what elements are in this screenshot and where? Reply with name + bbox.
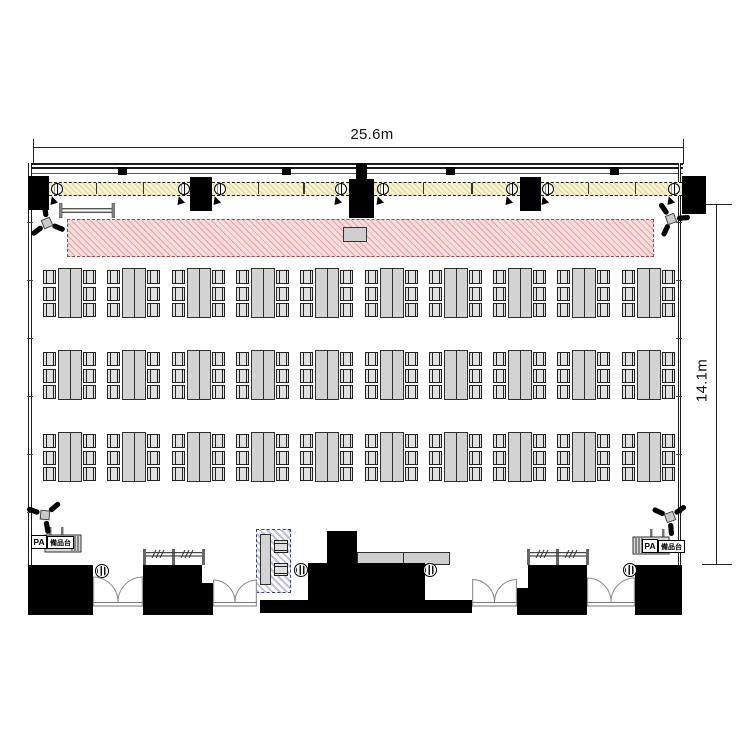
wall-joint-tick: [27, 396, 33, 397]
spotlight-icon: [178, 183, 190, 195]
light-batten: [49, 182, 190, 196]
banquet-table: [637, 268, 661, 318]
light-batten: [541, 182, 682, 196]
chair: [533, 434, 546, 448]
banquet-table-group: [429, 268, 482, 318]
chair: [493, 451, 506, 465]
wall-junction-box: [118, 167, 127, 175]
chair: [405, 451, 418, 465]
chair: [662, 467, 675, 481]
chair: [429, 287, 442, 301]
banquet-table: [187, 432, 211, 482]
spotlight-mount-icon: [175, 195, 185, 205]
wall-joint-tick: [676, 338, 682, 339]
chair: [557, 467, 570, 481]
chair: [405, 303, 418, 317]
banquet-table-group: [622, 350, 675, 400]
chair: [236, 303, 249, 317]
chair: [300, 434, 313, 448]
chair: [493, 270, 506, 284]
chair: [276, 434, 289, 448]
operator-table: [260, 534, 271, 585]
chair: [597, 385, 610, 399]
chair: [236, 369, 249, 383]
banquet-table-group: [43, 432, 96, 482]
chair: [300, 385, 313, 399]
storage-block: [143, 565, 202, 615]
chair: [662, 385, 675, 399]
chair: [533, 287, 546, 301]
chair: [622, 451, 635, 465]
chair: [557, 451, 570, 465]
banquet-table-group: [172, 432, 225, 482]
banquet-table: [58, 268, 82, 318]
storage-block: [327, 531, 357, 564]
operator-chair: [274, 563, 288, 576]
banquet-table: [315, 432, 339, 482]
chair: [236, 385, 249, 399]
chair: [340, 270, 353, 284]
wall-junction-box: [446, 167, 455, 175]
chair: [212, 352, 225, 366]
wall-speaker-stem: [356, 163, 367, 180]
chair: [340, 434, 353, 448]
spotlight-mount-icon: [539, 195, 549, 205]
chair: [212, 287, 225, 301]
chair: [557, 303, 570, 317]
chair: [557, 270, 570, 284]
banquet-table: [637, 432, 661, 482]
chair: [276, 385, 289, 399]
spotlight-mount-icon: [374, 195, 384, 205]
double-door: [213, 576, 257, 608]
banquet-table-group: [557, 432, 610, 482]
chair: [597, 369, 610, 383]
chair: [557, 385, 570, 399]
chair: [172, 434, 185, 448]
chair: [276, 369, 289, 383]
depth-dimension-tick-bottom: [702, 564, 732, 565]
spotlight-mount-icon: [211, 195, 221, 205]
batten-divider-tick: [423, 183, 424, 194]
chair: [405, 385, 418, 399]
banquet-table: [122, 268, 146, 318]
chair: [147, 467, 160, 481]
chair: [300, 451, 313, 465]
spotlight-icon: [51, 183, 63, 195]
chair: [107, 303, 120, 317]
banquet-table: [380, 268, 404, 318]
chair: [597, 352, 610, 366]
banquet-table: [444, 432, 468, 482]
chair: [43, 303, 56, 317]
banquet-table-group: [557, 350, 610, 400]
banquet-table: [251, 350, 275, 400]
ceiling-speaker-icon: [26, 496, 64, 534]
batten-divider-tick: [143, 183, 144, 194]
chair: [83, 467, 96, 481]
chair: [469, 303, 482, 317]
chair: [83, 352, 96, 366]
width-dimension-tick-right: [683, 139, 684, 164]
chair: [147, 434, 160, 448]
batten-divider-tick: [96, 183, 97, 194]
chair: [212, 385, 225, 399]
chair: [107, 434, 120, 448]
chair: [107, 352, 120, 366]
banquet-table: [444, 350, 468, 400]
banquet-table: [380, 432, 404, 482]
chair: [533, 303, 546, 317]
chair: [469, 385, 482, 399]
chair: [212, 369, 225, 383]
pa-label-right: PA: [642, 539, 658, 553]
chair: [172, 467, 185, 481]
chair: [533, 352, 546, 366]
ceiling-speaker-icon: [651, 498, 689, 536]
double-door: [587, 576, 635, 608]
prop-table-icon: [59, 203, 115, 218]
chair: [662, 287, 675, 301]
chair: [493, 369, 506, 383]
banquet-table-group: [365, 268, 418, 318]
storage-block: [528, 565, 587, 615]
banquet-table: [508, 350, 532, 400]
wall-speaker-box: [520, 177, 541, 211]
banquet-table-group: [300, 432, 353, 482]
banquet-table-group: [493, 432, 546, 482]
chair: [83, 270, 96, 284]
chair: [533, 467, 546, 481]
chair: [597, 287, 610, 301]
chair: [172, 352, 185, 366]
banquet-table: [251, 432, 275, 482]
chair: [622, 385, 635, 399]
chair: [43, 287, 56, 301]
lectern: [343, 227, 367, 242]
coat-rack-icon: [527, 549, 589, 565]
chair: [405, 270, 418, 284]
chair: [662, 451, 675, 465]
chair: [493, 287, 506, 301]
batten-divider-tick: [635, 183, 636, 194]
column: [423, 563, 437, 577]
pa-label-left: PA: [31, 535, 47, 549]
operator-chair: [274, 540, 288, 553]
chair: [405, 287, 418, 301]
banquet-table: [251, 268, 275, 318]
banquet-table: [508, 268, 532, 318]
chair: [429, 270, 442, 284]
banquet-table-group: [43, 268, 96, 318]
chair: [365, 287, 378, 301]
chair: [147, 352, 160, 366]
chair: [300, 352, 313, 366]
chair: [43, 434, 56, 448]
wall-joint-tick: [676, 280, 682, 281]
chair: [340, 467, 353, 481]
chair: [557, 287, 570, 301]
banquet-table: [315, 350, 339, 400]
chair: [107, 467, 120, 481]
chair: [622, 303, 635, 317]
chair: [469, 369, 482, 383]
chair: [469, 467, 482, 481]
chair: [493, 467, 506, 481]
chair: [83, 385, 96, 399]
chair: [212, 303, 225, 317]
chair: [43, 385, 56, 399]
banquet-table-group: [236, 268, 289, 318]
banquet-table-group: [493, 268, 546, 318]
chair: [83, 451, 96, 465]
chair: [172, 369, 185, 383]
banquet-table: [187, 268, 211, 318]
batten-divider-tick: [303, 183, 304, 194]
banquet-table: [187, 350, 211, 400]
chair: [469, 434, 482, 448]
chair: [405, 434, 418, 448]
wall-joint-tick: [676, 454, 682, 455]
chair: [300, 270, 313, 284]
spotlight-mount-icon: [503, 195, 513, 205]
chair: [429, 369, 442, 383]
chair: [493, 434, 506, 448]
wall-junction-box: [610, 167, 619, 175]
wall-joint-tick: [27, 338, 33, 339]
light-batten: [212, 182, 349, 196]
chair: [365, 369, 378, 383]
chair: [276, 352, 289, 366]
chair: [365, 352, 378, 366]
chair: [147, 287, 160, 301]
banquet-table: [572, 268, 596, 318]
chair: [172, 385, 185, 399]
banquet-table-group: [107, 432, 160, 482]
chair: [662, 303, 675, 317]
chair: [622, 287, 635, 301]
spotlight-icon: [506, 183, 518, 195]
storage-block: [260, 600, 472, 613]
banquet-table-group: [107, 268, 160, 318]
chair: [212, 270, 225, 284]
chair: [469, 451, 482, 465]
batten-divider-tick: [588, 183, 589, 194]
storage-block: [202, 583, 213, 615]
wall-speaker-box: [349, 179, 374, 218]
chair: [557, 434, 570, 448]
chair: [340, 369, 353, 383]
chair: [493, 385, 506, 399]
double-door: [472, 576, 517, 608]
chair: [172, 451, 185, 465]
chair: [365, 385, 378, 399]
banquet-table-group: [43, 350, 96, 400]
wall-joint-tick: [676, 396, 682, 397]
banquet-table-group: [429, 432, 482, 482]
banquet-table-group: [493, 350, 546, 400]
chair: [469, 287, 482, 301]
chair: [43, 451, 56, 465]
width-dimension-tick-left: [33, 139, 34, 164]
banquet-table: [58, 432, 82, 482]
chair: [43, 270, 56, 284]
chair: [236, 434, 249, 448]
chair: [212, 467, 225, 481]
banquet-table-group: [300, 350, 353, 400]
chair: [557, 352, 570, 366]
banquet-table-group: [300, 268, 353, 318]
chair: [533, 385, 546, 399]
chair: [236, 287, 249, 301]
chair: [340, 385, 353, 399]
light-batten: [374, 182, 520, 196]
banquet-table: [380, 350, 404, 400]
chair: [469, 270, 482, 284]
chair: [236, 352, 249, 366]
chair: [340, 287, 353, 301]
chair: [172, 287, 185, 301]
banquet-table-group: [172, 350, 225, 400]
chair: [429, 434, 442, 448]
chair: [493, 303, 506, 317]
coat-rack-icon: [143, 549, 205, 565]
spotlight-icon: [542, 183, 554, 195]
ceiling-speaker-icon: [28, 204, 66, 242]
chair: [107, 369, 120, 383]
chair: [493, 352, 506, 366]
chair: [533, 451, 546, 465]
chair: [83, 303, 96, 317]
banquet-table-group: [236, 432, 289, 482]
chair: [107, 270, 120, 284]
chair: [597, 303, 610, 317]
chair: [276, 287, 289, 301]
chair: [172, 270, 185, 284]
batten-divider-tick: [471, 183, 472, 194]
chair: [405, 467, 418, 481]
chair: [107, 451, 120, 465]
chair: [469, 352, 482, 366]
banquet-table-group: [622, 268, 675, 318]
column: [294, 563, 308, 577]
chair: [365, 303, 378, 317]
chair: [83, 369, 96, 383]
chair: [597, 467, 610, 481]
chair: [300, 287, 313, 301]
chair: [662, 434, 675, 448]
banquet-table: [572, 350, 596, 400]
chair: [276, 451, 289, 465]
chair: [43, 369, 56, 383]
chair: [340, 451, 353, 465]
chair: [147, 385, 160, 399]
banquet-table-group: [557, 268, 610, 318]
chair: [365, 467, 378, 481]
spotlight-mount-icon: [332, 195, 342, 205]
chair: [557, 369, 570, 383]
chair: [622, 270, 635, 284]
chair: [429, 352, 442, 366]
depth-dimension-line: [716, 204, 717, 565]
chair: [365, 270, 378, 284]
chair: [429, 303, 442, 317]
chair: [622, 369, 635, 383]
chair: [236, 467, 249, 481]
storage-block: [635, 565, 682, 615]
batten-divider-tick: [258, 183, 259, 194]
chair: [147, 270, 160, 284]
wall-joint-tick: [27, 454, 33, 455]
banquet-table-group: [107, 350, 160, 400]
spotlight-icon: [668, 183, 680, 195]
storage-block: [28, 565, 93, 615]
chair: [276, 303, 289, 317]
chair: [147, 451, 160, 465]
chair: [107, 287, 120, 301]
banquet-table-group: [365, 350, 418, 400]
chair: [622, 352, 635, 366]
chair: [236, 270, 249, 284]
banquet-table: [315, 268, 339, 318]
chair: [212, 451, 225, 465]
banquet-table-group: [172, 268, 225, 318]
chair: [276, 467, 289, 481]
chair: [365, 434, 378, 448]
spotlight-icon: [335, 183, 347, 195]
chair: [172, 303, 185, 317]
double-door: [93, 576, 143, 608]
banquet-table: [122, 350, 146, 400]
chair: [597, 270, 610, 284]
chair: [533, 270, 546, 284]
spotlight-icon: [377, 183, 389, 195]
width-dimension-label: 25.6m: [332, 126, 412, 143]
equipment-stand-label-left: 備品台: [47, 536, 74, 549]
chair: [405, 352, 418, 366]
chair: [429, 467, 442, 481]
chair: [276, 270, 289, 284]
chair: [83, 434, 96, 448]
equipment-stand-label-right: 備品台: [658, 540, 685, 553]
banquet-table-group: [429, 350, 482, 400]
banquet-table-group: [236, 350, 289, 400]
chair: [622, 467, 635, 481]
chair: [622, 434, 635, 448]
banquet-table: [58, 350, 82, 400]
chair: [662, 352, 675, 366]
chair: [340, 303, 353, 317]
chair: [43, 467, 56, 481]
ceiling-speaker-icon: [652, 200, 690, 238]
banquet-table-group: [365, 432, 418, 482]
chair: [300, 467, 313, 481]
wall-junction-box: [282, 167, 291, 175]
chair: [597, 451, 610, 465]
column: [623, 563, 637, 577]
chair: [662, 270, 675, 284]
banquet-table: [122, 432, 146, 482]
banquet-table: [572, 432, 596, 482]
chair: [662, 369, 675, 383]
storage-block: [308, 563, 425, 601]
chair: [236, 451, 249, 465]
chair: [300, 369, 313, 383]
width-dimension-line: [33, 147, 684, 148]
spotlight-icon: [214, 183, 226, 195]
banquet-table: [508, 432, 532, 482]
chair: [107, 385, 120, 399]
